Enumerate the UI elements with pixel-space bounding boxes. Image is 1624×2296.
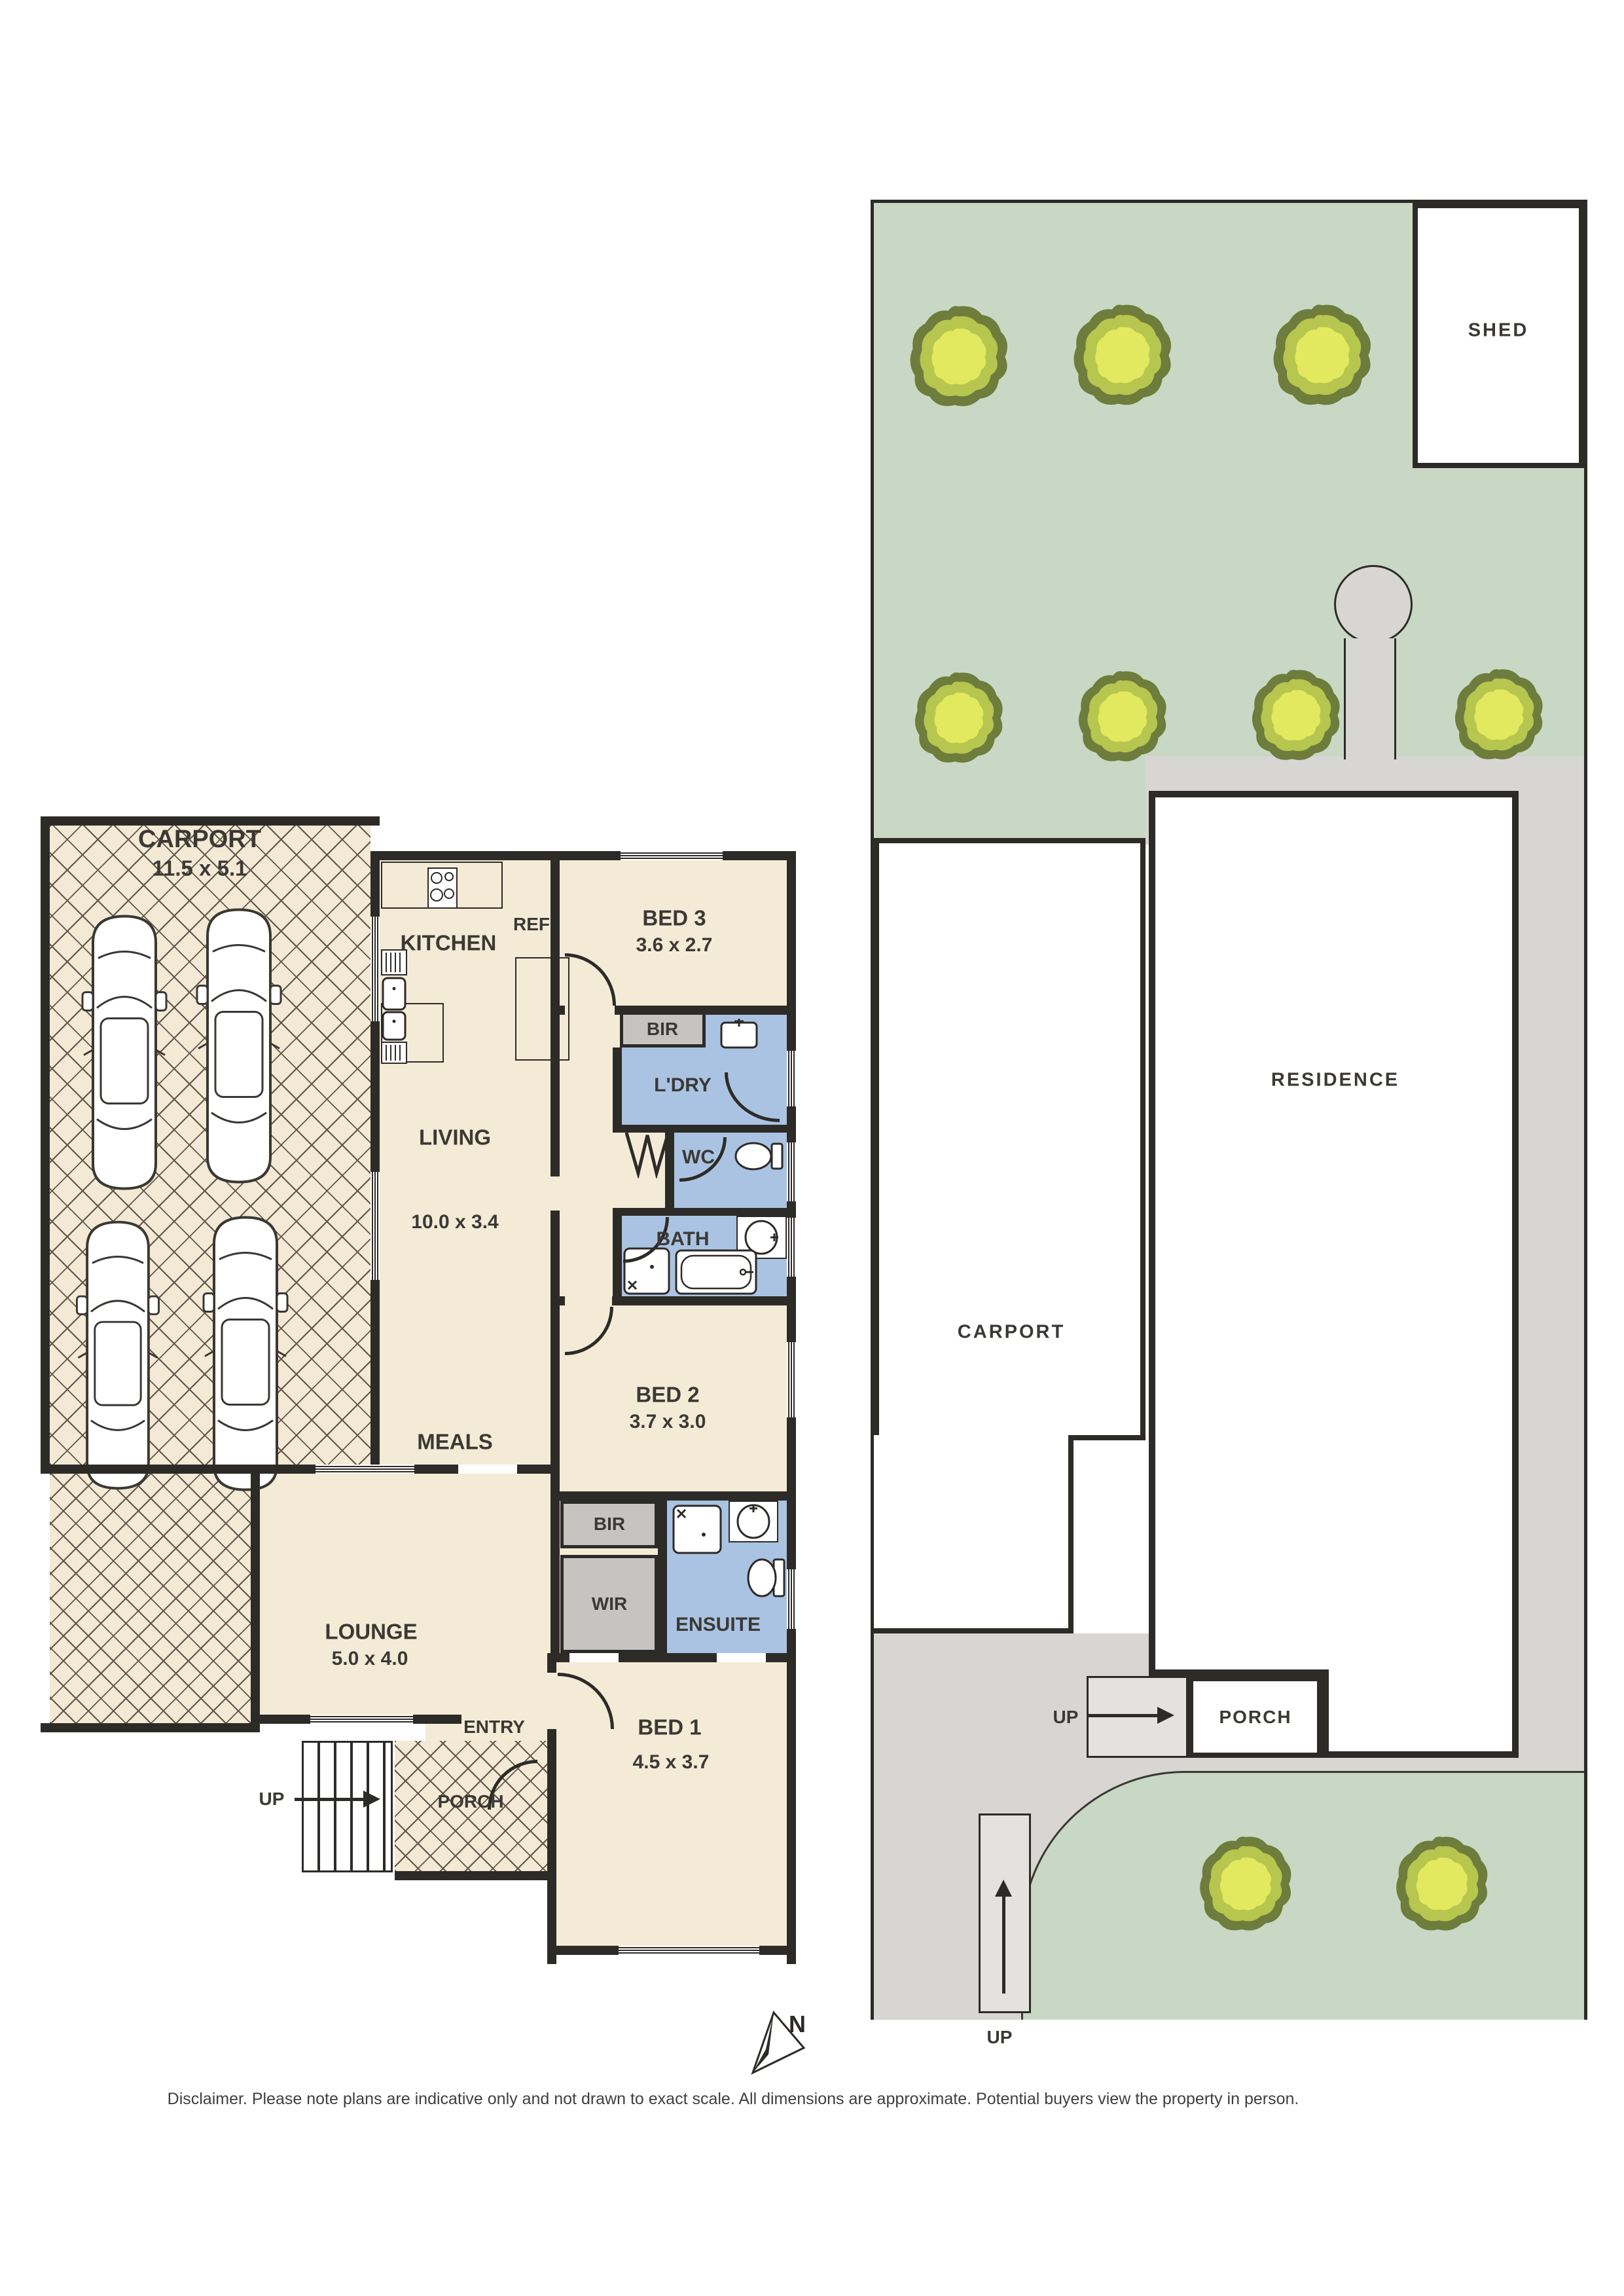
toilet-icon (731, 1141, 785, 1171)
car-icon (72, 1214, 164, 1496)
site-plan: SHED CARPORT RESIDENCE PORCH UP (871, 200, 1587, 2020)
tree-icon (1270, 303, 1375, 408)
residence-box (1149, 791, 1519, 1676)
bed1-dims: 4.5 x 3.7 (633, 1753, 710, 1772)
wall (613, 1208, 787, 1216)
wall (41, 826, 50, 1474)
site-carport-box (874, 838, 1146, 1440)
door-opening (547, 1673, 556, 1729)
window (787, 1051, 796, 1106)
wall (370, 851, 796, 860)
tree-icon (1393, 1835, 1491, 1933)
residence-box (1322, 1669, 1519, 1758)
tree-icon (1070, 303, 1175, 408)
living-label: LIVING (419, 1127, 491, 1148)
laundry-tub-icon (720, 1017, 758, 1049)
wall (560, 1491, 796, 1501)
wc-label: WC (682, 1148, 715, 1167)
site-porch-label: PORCH (1219, 1708, 1291, 1726)
stairs-arrowhead-icon (995, 1880, 1012, 1897)
lounge-dims: 5.0 x 4.0 (332, 1649, 408, 1669)
patio-path (1344, 638, 1396, 759)
stairs-arrowhead-icon (1157, 1707, 1174, 1724)
wall (395, 1871, 556, 1880)
fridge-space (515, 957, 569, 1061)
window (310, 1715, 413, 1724)
wall (658, 1501, 667, 1653)
bed3-dims: 3.6 x 2.7 (636, 936, 713, 955)
north-label: N (789, 2013, 806, 2036)
disclaimer-text: Disclaimer. Please note plans are indica… (0, 2090, 1466, 2109)
up-label: UP (1053, 1708, 1079, 1726)
window (787, 1218, 796, 1277)
tree-icon (1197, 1835, 1295, 1933)
patio-circle (1334, 565, 1413, 644)
wall-opening (550, 1176, 560, 1211)
ensuite-label: ENSUITE (676, 1615, 761, 1635)
lounge-floor (260, 1474, 560, 1715)
stairs-arrowhead-icon (363, 1791, 380, 1808)
site-carport-label: CARPORT (958, 1323, 1065, 1342)
stairs-arrow (1002, 1895, 1005, 1994)
wir-label: WIR (592, 1595, 627, 1613)
floorplan-page: CARPORT 11.5 x 5.1 KITCHEN REF BED 3 3.6… (0, 0, 1624, 2296)
window (787, 1342, 796, 1417)
tree-icon (1249, 668, 1343, 763)
toilet-icon (746, 1550, 787, 1605)
tree-icon (1075, 670, 1170, 764)
wall (613, 1216, 622, 1296)
bed2-label: BED 2 (636, 1384, 699, 1406)
front-lawn (1021, 1771, 1584, 2020)
car-icon (193, 897, 285, 1195)
door-opening (565, 1006, 615, 1015)
porch-label: PORCH (437, 1793, 503, 1811)
floor-plan: CARPORT 11.5 x 5.1 KITCHEN REF BED 3 3.6… (36, 812, 799, 1967)
entry-label: ENTRY (463, 1718, 525, 1736)
bed2-dims: 3.7 x 3.0 (630, 1412, 706, 1432)
door-opening (565, 1296, 612, 1305)
stairs-arrow (295, 1798, 365, 1801)
window (370, 917, 380, 1021)
wall-opening (569, 1653, 619, 1662)
up-label: UP (987, 2028, 1013, 2047)
laundry-label: L'DRY (654, 1076, 712, 1095)
wall-opening (458, 1465, 517, 1474)
wall (251, 1474, 260, 1723)
carport-label: CARPORT (138, 827, 261, 852)
tree-icon (912, 671, 1006, 765)
tree-icon (907, 304, 1011, 409)
site-carport-box (874, 1435, 1074, 1633)
bir-label: BIR (594, 1515, 625, 1533)
stairs-arrow (1087, 1714, 1159, 1717)
zigzag-icon (624, 1127, 671, 1178)
bath-label: BATH (656, 1230, 709, 1249)
wall-opening (717, 1653, 766, 1662)
window (787, 1569, 796, 1629)
window (370, 1172, 380, 1280)
stove-icon (427, 867, 458, 909)
car-icon (79, 907, 170, 1198)
wall (41, 1723, 260, 1732)
window (619, 1946, 759, 1955)
lounge-label: LOUNGE (325, 1621, 417, 1643)
basin-icon (734, 1503, 773, 1540)
carport-dims: 11.5 x 5.1 (153, 858, 247, 879)
bathtub-icon (675, 1249, 757, 1295)
wall (41, 816, 380, 826)
up-label: UP (259, 1790, 285, 1808)
kitchen-label: KITCHEN (401, 932, 497, 954)
bed3-label: BED 3 (642, 907, 706, 929)
courtyard-hatch (50, 1474, 251, 1723)
window (787, 1142, 796, 1201)
bed1-label: BED 1 (638, 1717, 701, 1738)
residence-label: RESIDENCE (1271, 1071, 1399, 1090)
car-icon (200, 1208, 291, 1499)
kitchen-sink-icon (381, 949, 407, 1064)
bir-label: BIR (647, 1020, 678, 1038)
ref-label: REF (513, 915, 550, 934)
window (316, 1465, 414, 1474)
meals-label: MEALS (417, 1431, 493, 1453)
shower-icon (672, 1504, 722, 1554)
wall (613, 1048, 622, 1125)
window (621, 851, 723, 860)
tree-icon (1452, 668, 1546, 762)
shed-label: SHED (1468, 321, 1529, 340)
living-dims: 10.0 x 3.4 (411, 1212, 498, 1232)
